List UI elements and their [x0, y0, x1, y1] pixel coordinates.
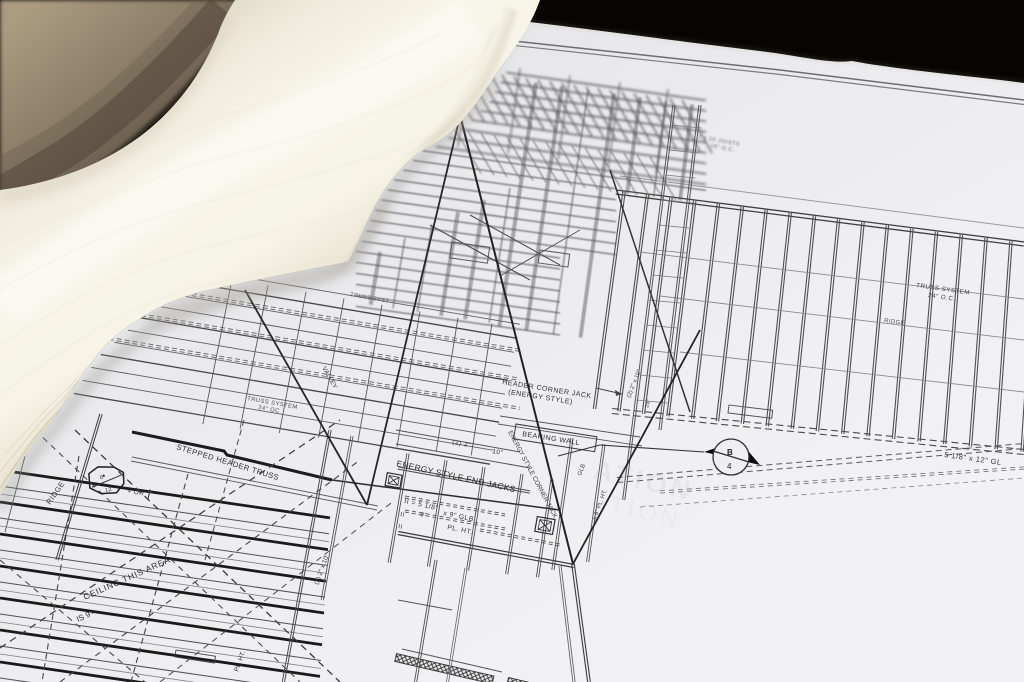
svg-text:B: B [727, 448, 733, 457]
svg-text:4: 4 [727, 462, 732, 471]
